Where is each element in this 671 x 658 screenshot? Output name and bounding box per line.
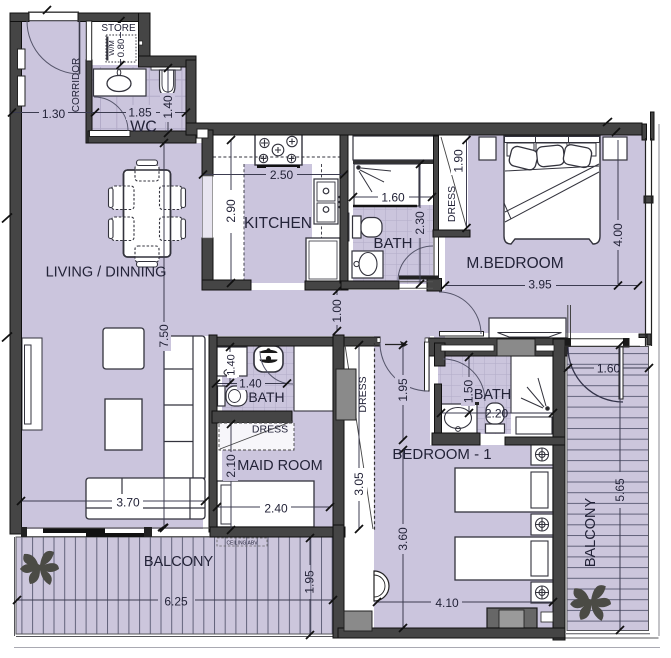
svg-text:1.30: 1.30	[42, 107, 66, 121]
svg-text:STORE: STORE	[101, 23, 136, 34]
svg-text:6.25: 6.25	[164, 595, 188, 609]
svg-text:3.70: 3.70	[116, 496, 140, 510]
svg-text:4.10: 4.10	[435, 596, 459, 610]
svg-text:DRESS: DRESS	[357, 376, 369, 412]
svg-text:2.50: 2.50	[270, 168, 294, 182]
svg-text:BATH: BATH	[474, 387, 512, 403]
svg-text:1.90: 1.90	[452, 149, 466, 173]
svg-text:1.85: 1.85	[128, 106, 152, 120]
svg-text:BATH: BATH	[374, 235, 413, 252]
svg-text:BEDROOM - 1: BEDROOM - 1	[392, 446, 491, 463]
svg-text:BALCONY: BALCONY	[583, 498, 599, 568]
svg-text:1.00: 1.00	[330, 299, 344, 323]
svg-text:2.40: 2.40	[264, 502, 288, 516]
svg-text:4.00: 4.00	[611, 223, 625, 247]
svg-text:DRESS: DRESS	[252, 424, 288, 436]
svg-text:3.05: 3.05	[352, 472, 366, 496]
svg-text:1.40: 1.40	[226, 354, 238, 375]
svg-text:MAID ROOM: MAID ROOM	[237, 458, 322, 474]
svg-text:LIVING / DINNING: LIVING / DINNING	[46, 265, 167, 281]
svg-text:1.95: 1.95	[396, 378, 410, 402]
svg-text:DRESS: DRESS	[446, 186, 458, 222]
svg-text:1.60: 1.60	[381, 191, 405, 205]
svg-text:2.20: 2.20	[485, 407, 509, 421]
svg-text:1.95: 1.95	[303, 570, 317, 594]
svg-text:0.80: 0.80	[116, 39, 127, 58]
svg-text:7.50: 7.50	[157, 324, 171, 348]
svg-text:2.30: 2.30	[413, 211, 427, 235]
svg-text:BALCONY: BALCONY	[144, 554, 214, 570]
svg-text:BATH: BATH	[248, 389, 284, 405]
svg-text:3.95: 3.95	[528, 278, 552, 292]
svg-text:1.40: 1.40	[161, 95, 175, 119]
svg-text:WC: WC	[130, 119, 157, 136]
svg-text:5.65: 5.65	[613, 478, 627, 502]
svg-text:CEILING ABV: CEILING ABV	[226, 541, 258, 547]
svg-text:1.60: 1.60	[597, 362, 621, 376]
svg-text:KITCHEN: KITCHEN	[244, 215, 312, 232]
svg-text:CORRIDOR: CORRIDOR	[71, 58, 82, 112]
svg-text:3.60: 3.60	[396, 527, 410, 551]
svg-text:M.BEDROOM: M.BEDROOM	[466, 255, 563, 272]
svg-text:W/M: W/M	[107, 40, 116, 55]
svg-text:2.10: 2.10	[224, 454, 238, 478]
svg-text:2.90: 2.90	[224, 199, 238, 223]
